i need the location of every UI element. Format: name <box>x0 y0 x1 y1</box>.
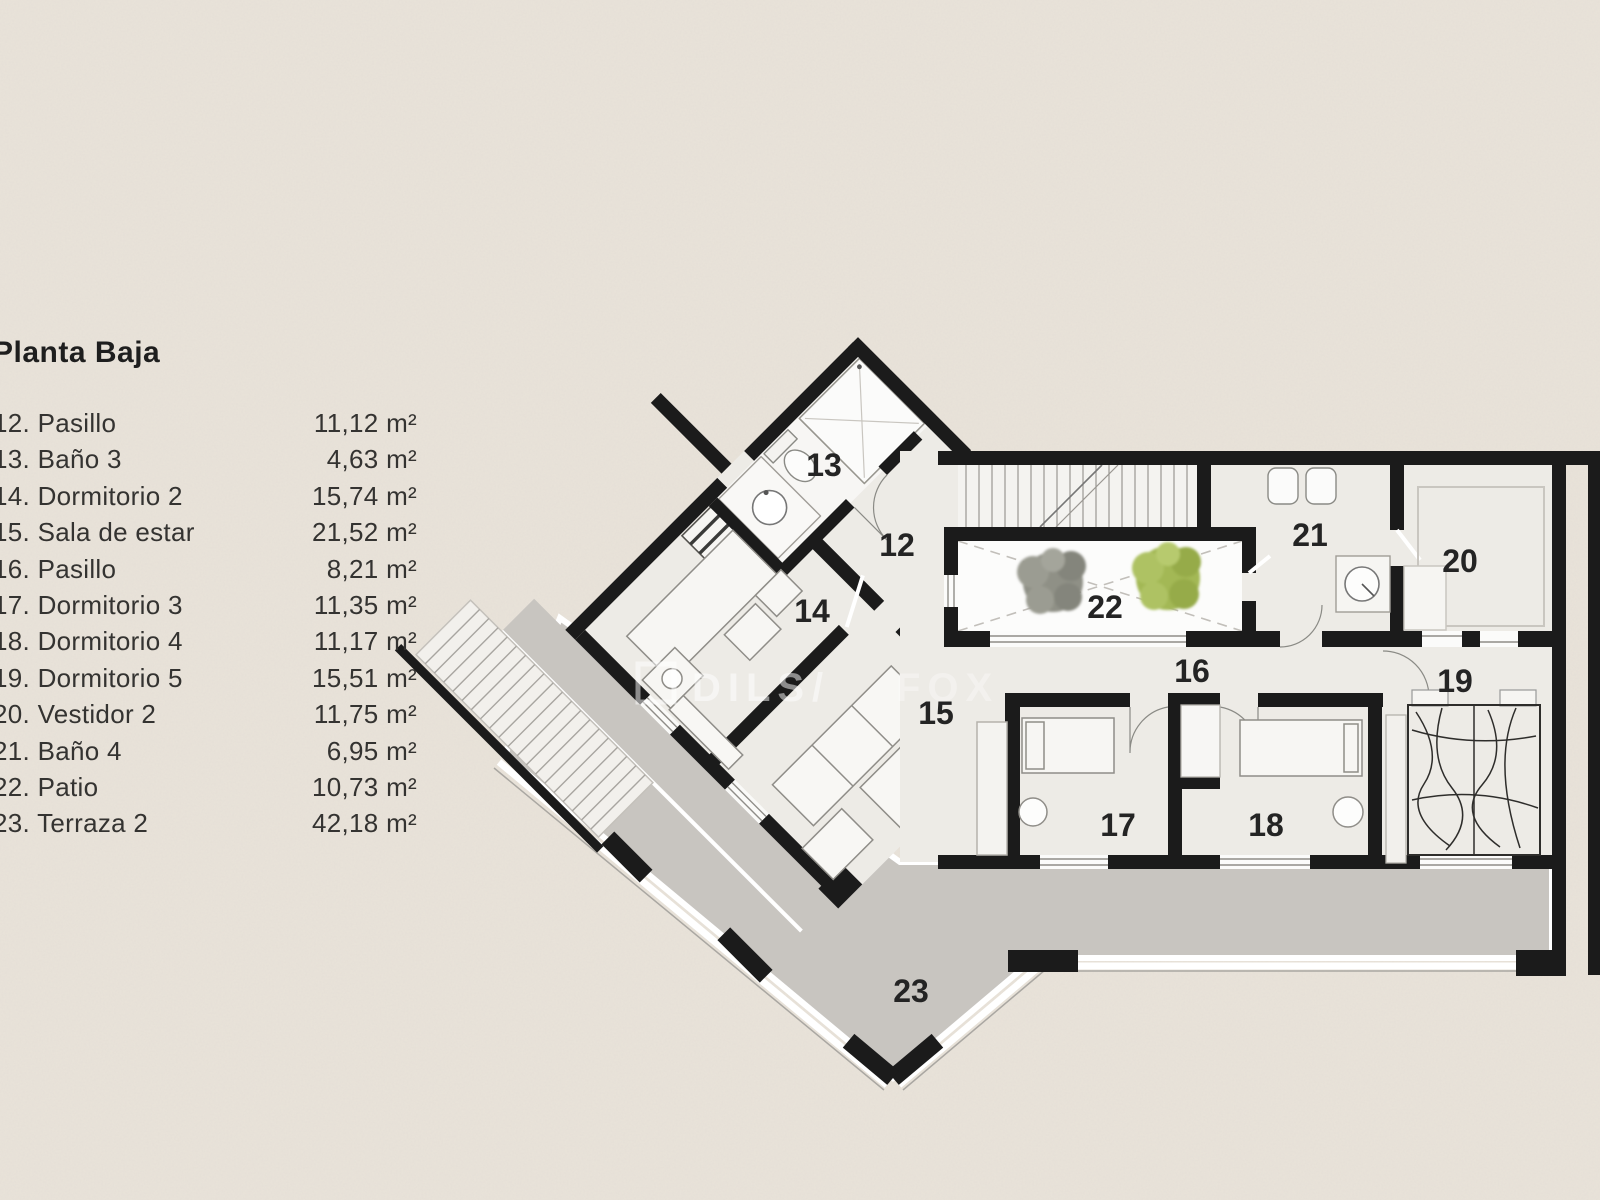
legend-item-label: 19. Dormitorio 5 <box>0 663 183 694</box>
legend-item-label: 13. Baño 3 <box>0 444 122 475</box>
legend-item-label: 12. Pasillo <box>0 408 116 439</box>
room-label-20: 20 <box>1442 543 1478 579</box>
legend-item-area: 11,17 m² <box>314 626 417 657</box>
watermark-separator: / <box>812 666 830 710</box>
wall-bottom-1 <box>938 855 1040 869</box>
legend-title: Planta Baja <box>0 336 417 370</box>
legend-item-area: 10,73 m² <box>312 772 417 803</box>
legend-item-18: 18. Dormitorio 411,17 m² <box>0 626 417 662</box>
wall-right-edge <box>1588 465 1600 975</box>
legend-item-21: 21. Baño 46,95 m² <box>0 736 417 772</box>
room-label-16: 16 <box>1174 653 1210 689</box>
room-label-14: 14 <box>794 593 830 629</box>
toilet-icon <box>1268 468 1298 504</box>
legend-item-label: 15. Sala de estar <box>0 517 195 548</box>
legend-item-20: 20. Vestidor 211,75 m² <box>0 699 417 735</box>
wall-21-bottom-1 <box>1256 631 1280 647</box>
wall-20-bottom-2 <box>1462 631 1480 647</box>
room-label-13: 13 <box>806 447 842 483</box>
watermark-brand: DILS <box>692 666 811 710</box>
bidet-icon <box>1306 468 1336 504</box>
wall-20-bottom-3 <box>1518 631 1552 647</box>
legend: Planta Baja 12. Pasillo11,12 m² 13. Baño… <box>0 336 417 845</box>
legend-item-14: 14. Dormitorio 215,74 m² <box>0 481 417 517</box>
wall-patio-bottom-1 <box>944 631 990 647</box>
legend-item-17: 17. Dormitorio 311,35 m² <box>0 590 417 626</box>
legend-item-area: 8,21 m² <box>327 554 417 585</box>
wall-patio-right-2 <box>1242 601 1256 647</box>
legend-item-area: 21,52 m² <box>312 517 417 548</box>
room-label-22: 22 <box>1087 589 1123 625</box>
legend-item-label: 23. Terraza 2 <box>0 808 148 839</box>
legend-item-label: 18. Dormitorio 4 <box>0 626 183 657</box>
wall-bottom-4 <box>1512 855 1552 869</box>
wardrobe-19 <box>1386 715 1406 863</box>
side-table <box>1500 690 1536 706</box>
watermark: DILS / FOX <box>638 664 999 710</box>
wall-18-19 <box>1368 693 1382 869</box>
wall-top <box>938 451 1600 465</box>
legend-item-area: 42,18 m² <box>312 808 417 839</box>
room-label-23: 23 <box>893 973 929 1009</box>
interior-stair <box>958 465 1197 527</box>
legend-item-area: 11,75 m² <box>314 699 417 730</box>
legend-item-23: 23. Terraza 242,18 m² <box>0 808 417 844</box>
wall-stair-right <box>1197 465 1211 527</box>
closet-wall-bottom <box>1168 777 1220 789</box>
watermark-partner: FOX <box>896 666 999 710</box>
wall-21-20-a <box>1390 465 1404 530</box>
wall-21-bottom-2 <box>1322 631 1404 647</box>
legend-item-area: 4,63 m² <box>327 444 417 475</box>
legend-item-16: 16. Pasillo8,21 m² <box>0 554 417 590</box>
wall-corridor-18 <box>1258 693 1383 707</box>
legend-item-13: 13. Baño 34,63 m² <box>0 444 417 480</box>
legend-item-label: 17. Dormitorio 3 <box>0 590 183 621</box>
tree-gray-icon <box>1017 548 1086 614</box>
legend-item-15: 15. Sala de estar21,52 m² <box>0 517 417 553</box>
wall-21-20-b <box>1390 566 1404 631</box>
legend-item-label: 20. Vestidor 2 <box>0 699 156 730</box>
room-label-17: 17 <box>1100 807 1136 843</box>
legend-item-19: 19. Dormitorio 515,51 m² <box>0 663 417 699</box>
legend-item-label: 14. Dormitorio 2 <box>0 481 183 512</box>
legend-item-area: 15,74 m² <box>312 481 417 512</box>
legend-item-label: 22. Patio <box>0 772 98 803</box>
legend-item-22: 22. Patio10,73 m² <box>0 772 417 808</box>
pillow-18 <box>1344 724 1358 772</box>
legend-item-12: 12. Pasillo11,12 m² <box>0 408 417 444</box>
wardrobe-15 <box>977 722 1007 855</box>
page: 12 13 14 15 16 17 18 19 20 21 22 23 DILS… <box>0 0 1600 1200</box>
legend-item-area: 15,51 m² <box>312 663 417 694</box>
wall-bottom-2 <box>1108 855 1220 869</box>
room-label-21: 21 <box>1292 517 1328 553</box>
wall-20-bottom-1 <box>1404 631 1422 647</box>
legend-item-label: 16. Pasillo <box>0 554 116 585</box>
pillow-17 <box>1026 722 1044 769</box>
legend-item-label: 21. Baño 4 <box>0 736 122 767</box>
legend-item-area: 11,35 m² <box>314 590 417 621</box>
stool-17 <box>1019 798 1047 826</box>
room-label-18: 18 <box>1248 807 1284 843</box>
legend-item-area: 6,95 m² <box>327 736 417 767</box>
room-label-19: 19 <box>1437 663 1473 699</box>
stool-18 <box>1333 797 1363 827</box>
terrace-pillar <box>1008 950 1078 972</box>
room-label-12: 12 <box>879 527 915 563</box>
wall-right <box>1552 465 1566 976</box>
closet-notch <box>1404 566 1446 630</box>
wall-patio-left-1 <box>944 541 958 575</box>
closet-wall-left <box>1168 693 1181 789</box>
legend-rows: 12. Pasillo11,12 m² 13. Baño 34,63 m² 14… <box>0 408 417 845</box>
wall-patio-top <box>944 527 1256 541</box>
closet-17-18 <box>1181 705 1220 777</box>
wall-corridor-17 <box>1020 693 1130 707</box>
legend-item-area: 11,12 m² <box>314 408 417 439</box>
